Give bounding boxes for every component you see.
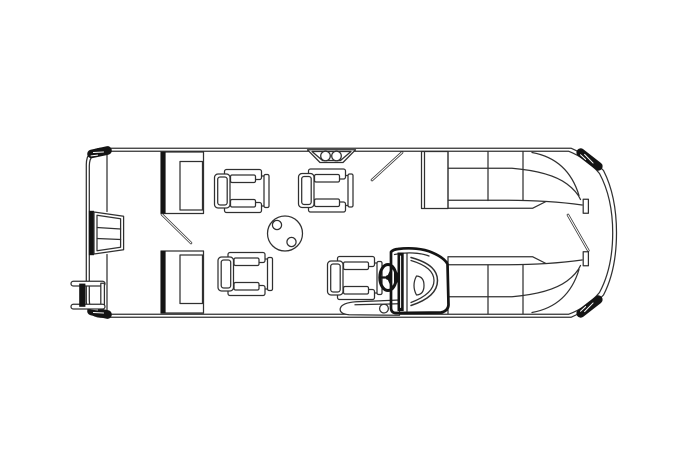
corner-bumper-top-right	[575, 147, 605, 173]
bench-cushion	[180, 162, 203, 211]
bench-seat-bottom	[161, 251, 204, 313]
wheel-hub	[386, 275, 391, 280]
cupholder	[332, 151, 342, 161]
stern-lounge-bottom	[448, 252, 588, 314]
stern-gate-post-bottom	[583, 252, 588, 266]
corner-bumper-top-left	[86, 145, 112, 159]
pedestal-table	[268, 216, 303, 251]
gate-opening-left	[162, 215, 191, 244]
cupholder	[287, 237, 296, 246]
lounge-seat-divisions	[448, 257, 523, 314]
bow-gate-hinge-bar	[89, 211, 94, 255]
pontoon-floor-plan	[0, 0, 699, 466]
lounge-backrest-front	[448, 168, 581, 199]
lounge-base-line	[448, 257, 546, 264]
captain-chair-4	[328, 257, 383, 300]
floor-plan-canvas	[0, 0, 699, 466]
cupholder	[272, 220, 281, 229]
lounge-seat-front	[448, 200, 582, 205]
ladder-rail-bottom	[71, 304, 105, 309]
helm-console	[391, 248, 449, 313]
gate-opening-stern	[568, 215, 588, 251]
cupholder	[380, 304, 389, 313]
bench-backrest-bar	[161, 152, 166, 214]
boarding-ladder	[71, 281, 105, 309]
entry-step	[308, 150, 356, 163]
cupholder	[321, 151, 331, 161]
gate-opening-top	[372, 153, 402, 181]
lounge-backrest-front	[448, 266, 581, 297]
ladder-mount	[101, 283, 105, 307]
lounge-base-line	[448, 202, 546, 209]
console-gauge-pod	[414, 276, 424, 295]
bench-seat-top	[161, 152, 204, 214]
bow-boarding-gate	[89, 211, 124, 255]
lounge-backrest-corner	[532, 153, 579, 196]
captain-chair-3	[218, 253, 273, 296]
lounge-chaise-end	[422, 152, 449, 209]
lounge-seat-front	[448, 260, 582, 265]
captain-chair-1	[215, 170, 270, 213]
lounge-backrest-corner	[532, 270, 579, 313]
captain-chair-2	[299, 169, 354, 212]
corner-bumper-bottom-right	[575, 294, 605, 320]
ladder-rail-top	[71, 281, 105, 286]
table-top	[268, 216, 303, 251]
stern-gate-post-top	[583, 199, 588, 213]
bench-backrest-bar	[161, 251, 166, 313]
ladder-step-bar	[79, 284, 85, 307]
bench-cushion	[180, 255, 203, 304]
stern-lounge-top	[422, 152, 589, 214]
